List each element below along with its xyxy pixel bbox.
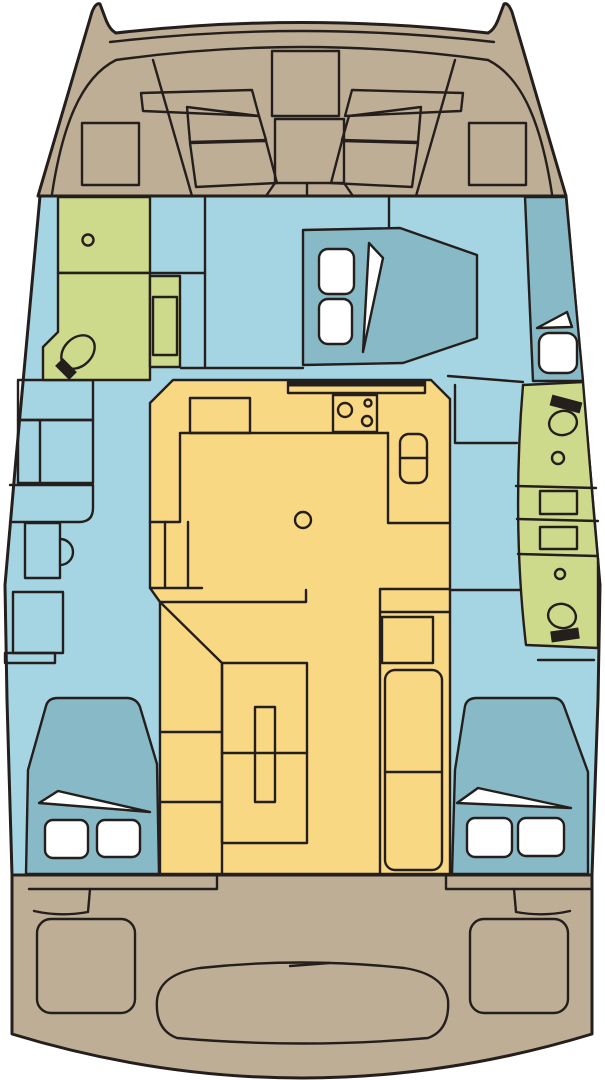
forward-bed-pillow-2 [319,299,352,344]
catamaran-floor-plan [0,0,605,1080]
bow-deck [38,4,566,196]
starboard-berth-pillow [539,333,577,373]
galley-salon-shape [150,380,450,874]
starboard-aft-pillow-2 [518,818,564,856]
port-aft-pillow-1 [45,820,88,858]
stern-cockpit [12,875,592,1078]
galley-salon [150,380,450,874]
bow-deck-shape [38,4,566,196]
starboard-toilet-forward-band [551,400,581,408]
starboard-aft-pillow-1 [467,818,512,857]
starboard-bathroom [516,382,598,648]
floor-plan-canvas [0,0,605,1080]
stern-cockpit-shape [12,875,592,1078]
port-aft-pillow-2 [97,820,140,857]
forward-bed-pillow-1 [319,249,354,294]
port-shower [150,276,180,367]
starboard-toilet-aft-band [551,633,579,637]
plan-root [5,4,600,1078]
port-washroom [58,197,150,273]
